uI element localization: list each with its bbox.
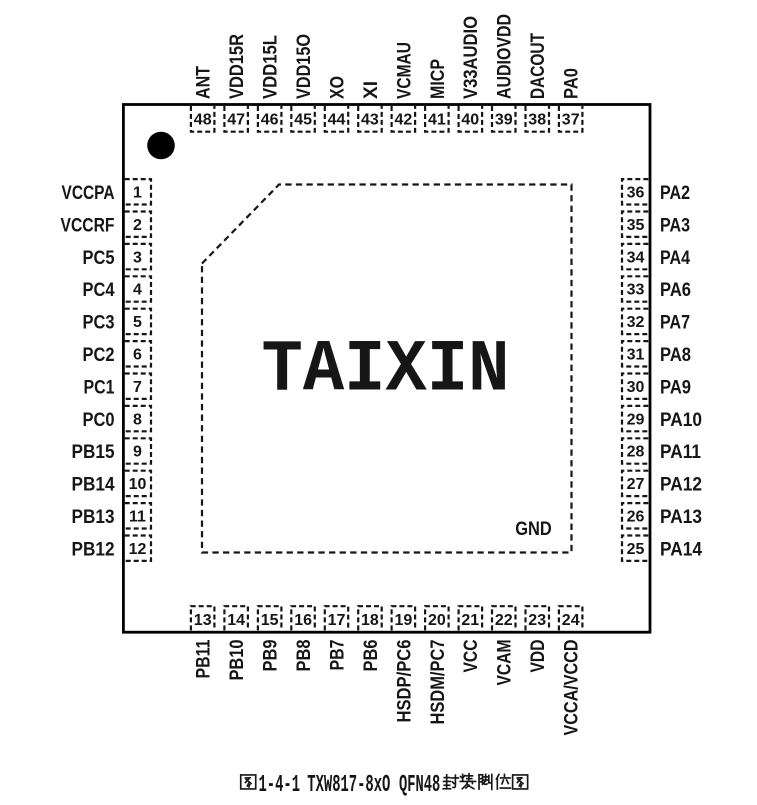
svg-text:PB13: PB13	[72, 506, 115, 528]
svg-text:XO: XO	[326, 76, 348, 99]
svg-text:9: 9	[133, 444, 142, 461]
svg-text:30: 30	[627, 379, 645, 396]
svg-text:PB7: PB7	[326, 640, 348, 671]
svg-text:TXW817-8xO: TXW817-8xO	[307, 772, 390, 799]
svg-text:46: 46	[261, 112, 279, 129]
svg-text:VCAM: VCAM	[494, 640, 516, 686]
svg-text:XI: XI	[360, 81, 382, 99]
svg-text:PA13: PA13	[660, 506, 702, 528]
svg-text:PA0: PA0	[561, 68, 583, 99]
svg-text:6: 6	[133, 347, 142, 364]
svg-text:1-4-1: 1-4-1	[259, 772, 301, 799]
svg-text:17: 17	[328, 612, 346, 629]
svg-text:PA12: PA12	[660, 474, 702, 496]
svg-text:26: 26	[627, 509, 645, 526]
svg-text:PB15: PB15	[72, 441, 115, 463]
svg-text:VDD15L: VDD15L	[260, 35, 282, 99]
svg-text:35: 35	[627, 217, 645, 234]
svg-text:VDD15O: VDD15O	[293, 34, 315, 99]
svg-text:TAIXIN: TAIXIN	[262, 329, 510, 412]
svg-text:28: 28	[627, 444, 645, 461]
svg-text:VDD: VDD	[527, 640, 549, 673]
svg-text:MICP: MICP	[427, 59, 449, 99]
svg-text:40: 40	[461, 112, 479, 129]
svg-text:43: 43	[361, 112, 379, 129]
svg-text:V33AUDIO: V33AUDIO	[460, 16, 482, 99]
svg-text:20: 20	[428, 612, 446, 629]
svg-text:ANT: ANT	[193, 66, 215, 99]
svg-text:PC1: PC1	[84, 376, 115, 398]
svg-text:25: 25	[627, 541, 645, 558]
svg-text:38: 38	[528, 112, 546, 129]
svg-text:PB6: PB6	[360, 639, 382, 671]
svg-text:8: 8	[133, 411, 142, 428]
svg-text:PA14: PA14	[660, 538, 702, 560]
svg-text:22: 22	[495, 612, 513, 629]
svg-text:14: 14	[227, 612, 245, 629]
svg-text:PA4: PA4	[660, 247, 690, 269]
svg-text:2: 2	[133, 217, 142, 234]
svg-text:39: 39	[495, 112, 513, 129]
svg-text:24: 24	[562, 612, 580, 629]
svg-text:16: 16	[294, 612, 312, 629]
svg-text:23: 23	[528, 612, 546, 629]
svg-text:19: 19	[395, 612, 413, 629]
svg-text:11: 11	[129, 509, 146, 526]
svg-text:PA10: PA10	[660, 409, 702, 431]
svg-text:PA8: PA8	[660, 344, 691, 366]
svg-text:VCCRF: VCCRF	[61, 214, 115, 236]
svg-text:41: 41	[428, 112, 446, 129]
svg-text:48: 48	[194, 112, 212, 129]
svg-text:PB11: PB11	[193, 639, 215, 678]
svg-text:PA2: PA2	[660, 182, 690, 204]
svg-text:4: 4	[133, 282, 142, 299]
svg-text:12: 12	[129, 541, 147, 558]
svg-text:PC3: PC3	[83, 312, 115, 334]
svg-text:PB12: PB12	[72, 538, 115, 560]
svg-text:13: 13	[194, 612, 212, 629]
svg-text:18: 18	[361, 612, 379, 629]
svg-text:PC0: PC0	[83, 409, 115, 431]
svg-text:DACOUT: DACOUT	[527, 33, 549, 99]
svg-text:PA9: PA9	[660, 376, 691, 398]
svg-text:PB9: PB9	[260, 639, 282, 671]
svg-text:GND: GND	[515, 518, 552, 540]
svg-text:10: 10	[129, 476, 147, 493]
svg-text:PB10: PB10	[226, 639, 248, 680]
svg-text:VDD15R: VDD15R	[226, 34, 248, 99]
svg-text:AUDIOVDD: AUDIOVDD	[494, 14, 516, 99]
svg-text:37: 37	[562, 112, 580, 129]
svg-text:PB8: PB8	[293, 639, 315, 671]
svg-text:27: 27	[627, 476, 645, 493]
svg-text:VCC: VCC	[460, 640, 482, 673]
svg-text:PA11: PA11	[660, 441, 701, 463]
svg-text:PA7: PA7	[660, 312, 690, 334]
svg-text:15: 15	[261, 612, 279, 629]
svg-text:33: 33	[627, 282, 645, 299]
svg-text:PC2: PC2	[83, 344, 115, 366]
svg-text:34: 34	[627, 249, 645, 266]
svg-text:VCCPA: VCCPA	[62, 182, 115, 204]
svg-text:3: 3	[133, 249, 142, 266]
svg-text:PA6: PA6	[660, 279, 691, 301]
svg-text:VCCA/VCCD: VCCA/VCCD	[561, 640, 583, 736]
svg-text:47: 47	[227, 112, 245, 129]
svg-text:5: 5	[133, 314, 142, 331]
svg-text:42: 42	[395, 112, 413, 129]
svg-text:29: 29	[627, 411, 645, 428]
svg-text:44: 44	[328, 112, 346, 129]
svg-text:1: 1	[133, 185, 142, 202]
svg-text:31: 31	[627, 347, 645, 364]
svg-text:32: 32	[627, 314, 645, 331]
svg-text:7: 7	[133, 379, 142, 396]
svg-text:HSDM/PC7: HSDM/PC7	[427, 640, 449, 725]
svg-text:45: 45	[294, 112, 312, 129]
svg-text:21: 21	[461, 612, 479, 629]
svg-text:VCMAU: VCMAU	[393, 42, 415, 99]
svg-text:36: 36	[627, 185, 645, 202]
svg-text:PB14: PB14	[72, 474, 115, 496]
svg-text:PA3: PA3	[660, 214, 690, 236]
svg-text:PC5: PC5	[83, 247, 115, 269]
svg-text:QFN48: QFN48	[399, 772, 440, 799]
svg-text:HSDP/PC6: HSDP/PC6	[393, 639, 415, 722]
svg-text:PC4: PC4	[83, 279, 115, 301]
